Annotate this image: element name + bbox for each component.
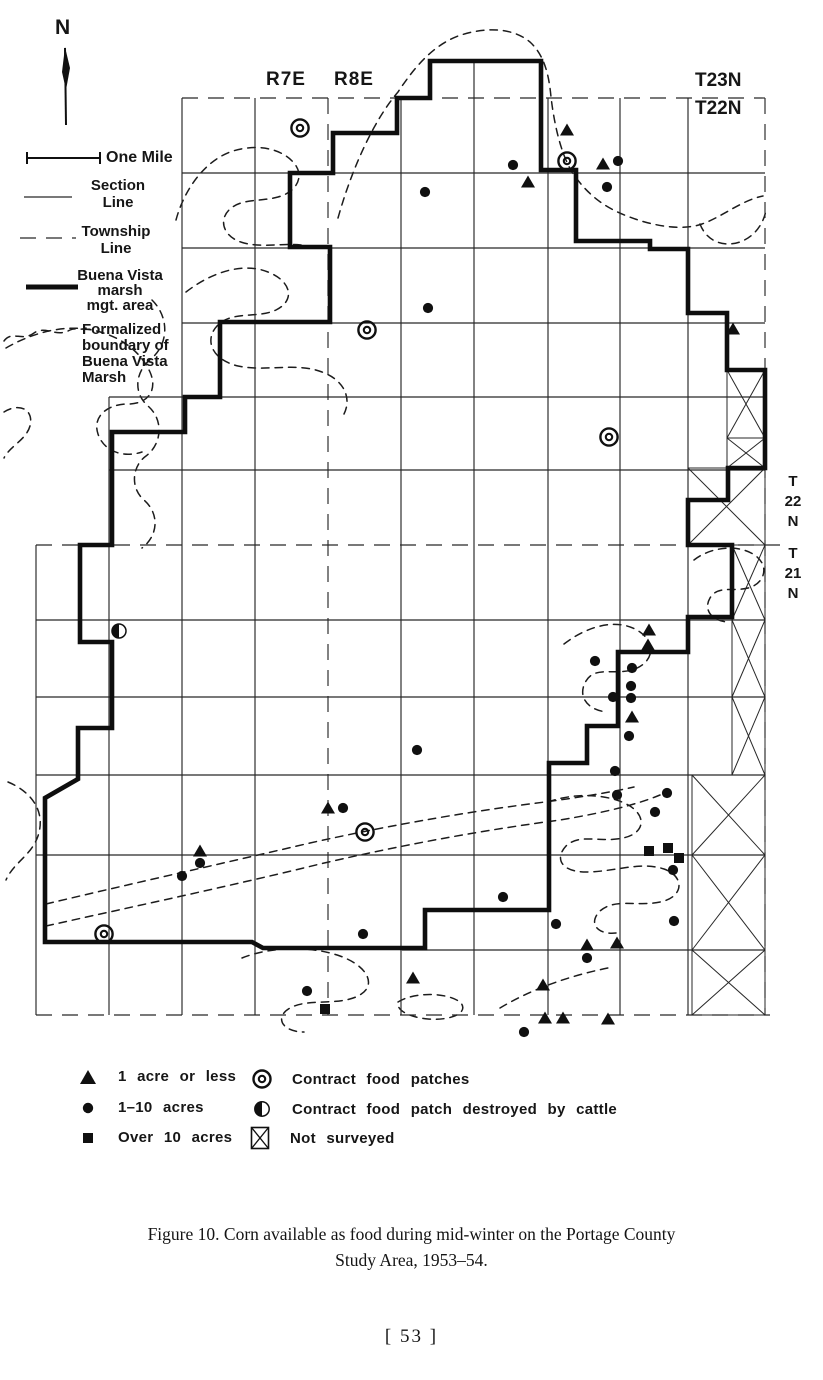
township-label-line: N bbox=[774, 584, 812, 604]
symbol-1-acre-or-less bbox=[580, 939, 594, 951]
symbol-1-acre-or-less bbox=[596, 158, 610, 170]
symbol-1-acre-or-less bbox=[610, 937, 624, 949]
legend-mgmt-area: Buena Vista marsh mgt. area bbox=[58, 268, 182, 313]
symbol-1-10-acres bbox=[519, 1027, 529, 1037]
symbol-1-10-acres bbox=[177, 871, 187, 881]
dot-icon bbox=[76, 1101, 100, 1115]
legend-item-1-10-acres: 1–10 acres bbox=[76, 1099, 204, 1116]
symbol-1-10-acres bbox=[195, 858, 205, 868]
legend-item-label: Contract food patch destroyed by cattle bbox=[292, 1101, 617, 1118]
page-number: [ 53 ] bbox=[0, 1326, 823, 1348]
symbol-1-acre-or-less bbox=[521, 176, 535, 188]
marsh-formalized-boundary bbox=[338, 30, 763, 227]
symbol-contract-food-patch bbox=[291, 119, 308, 136]
symbol-1-10-acres bbox=[612, 790, 622, 800]
symbol-1-acre-or-less bbox=[601, 1013, 615, 1025]
township-label-line: 22 bbox=[774, 492, 812, 512]
symbol-1-10-acres bbox=[650, 807, 660, 817]
symbol-over-10-acres bbox=[674, 853, 684, 863]
double-circle-icon bbox=[250, 1068, 274, 1090]
legend-item-destroyed-by-cattle: Contract food patch destroyed by cattle bbox=[250, 1099, 617, 1119]
township-label-line: N bbox=[774, 512, 812, 532]
symbol-1-10-acres bbox=[624, 731, 634, 741]
township-label-t23n: T23N bbox=[695, 70, 741, 92]
triangle-icon bbox=[76, 1069, 100, 1085]
legend-section-line: Section Line bbox=[70, 177, 166, 211]
symbol-1-10-acres bbox=[668, 865, 678, 875]
legend-item-over-10-acres: Over 10 acres bbox=[76, 1129, 232, 1146]
symbol-1-acre-or-less bbox=[560, 124, 574, 136]
symbol-1-10-acres bbox=[358, 929, 368, 939]
symbol-1-acre-or-less bbox=[556, 1012, 570, 1024]
symbol-1-10-acres bbox=[423, 303, 433, 313]
township-label-line: T bbox=[774, 544, 812, 564]
symbol-contract-food-patch bbox=[358, 321, 375, 338]
marsh-formalized-boundary bbox=[176, 148, 316, 248]
legend-mgmt-area-label: marsh bbox=[58, 283, 182, 298]
range-label-r7e: R7E bbox=[266, 69, 306, 91]
legend-marsh-boundary-label: Formalized bbox=[82, 322, 194, 338]
symbol-1-acre-or-less bbox=[193, 845, 207, 857]
marsh-formalized-boundary bbox=[46, 795, 660, 926]
symbol-1-10-acres bbox=[508, 160, 518, 170]
symbol-1-10-acres bbox=[582, 953, 592, 963]
symbol-over-10-acres bbox=[320, 1004, 330, 1014]
township-label-t22n-right: T 22 N bbox=[774, 472, 812, 532]
symbol-1-10-acres bbox=[627, 663, 637, 673]
symbol-1-acre-or-less bbox=[642, 624, 656, 636]
square-icon bbox=[76, 1132, 100, 1144]
legend-item-label: 1–10 acres bbox=[118, 1099, 204, 1116]
legend-item-label: Not surveyed bbox=[290, 1130, 395, 1147]
marsh-formalized-boundary bbox=[700, 210, 766, 244]
marsh-formalized-boundary bbox=[500, 968, 608, 1008]
township-label-line: 21 bbox=[774, 564, 812, 584]
township-label-t21n-right: T 21 N bbox=[774, 544, 812, 604]
symbol-1-10-acres bbox=[610, 766, 620, 776]
symbol-1-10-acres bbox=[338, 803, 348, 813]
figure-caption-line2: Study Area, 1953–54. bbox=[0, 1250, 823, 1271]
north-arrow-head bbox=[62, 47, 70, 90]
half-circle-icon bbox=[250, 1099, 274, 1119]
symbol-1-10-acres bbox=[626, 681, 636, 691]
symbol-1-10-acres bbox=[602, 182, 612, 192]
marsh-formalized-boundary bbox=[6, 782, 40, 880]
marsh-formalized-boundary bbox=[564, 624, 651, 712]
marsh-formalized-boundary bbox=[4, 408, 31, 458]
scale-label: One Mile bbox=[106, 149, 173, 167]
symbol-contract-food-patch bbox=[606, 434, 612, 440]
legend-mgmt-area-label: Buena Vista bbox=[58, 268, 182, 283]
symbol-1-10-acres bbox=[662, 788, 672, 798]
legend-township-line-label: Township bbox=[64, 223, 168, 240]
symbol-1-acre-or-less bbox=[625, 711, 639, 723]
legend-marsh-boundary-label: Marsh bbox=[82, 370, 194, 386]
legend-item-label: Over 10 acres bbox=[118, 1129, 232, 1146]
symbol-1-acre-or-less bbox=[406, 972, 420, 984]
symbol-1-10-acres bbox=[608, 692, 618, 702]
legend-marsh-boundary-sample bbox=[4, 328, 86, 341]
symbol-1-10-acres bbox=[498, 892, 508, 902]
north-label: N bbox=[55, 16, 71, 40]
symbol-1-acre-or-less bbox=[538, 1012, 552, 1024]
symbol-contract-food-patch bbox=[297, 125, 303, 131]
legend-item-not-surveyed: Not surveyed bbox=[248, 1126, 395, 1150]
legend-item-contract-food-patches: Contract food patches bbox=[250, 1068, 469, 1090]
symbol-1-10-acres bbox=[626, 693, 636, 703]
legend-section-line-label: Section bbox=[70, 177, 166, 194]
symbol-over-10-acres bbox=[644, 846, 654, 856]
legend-township-line: Township Line bbox=[64, 223, 168, 257]
legend-marsh-boundary: Formalized boundary of Buena Vista Marsh bbox=[82, 322, 194, 386]
marsh-formalized-boundary bbox=[694, 548, 764, 622]
legend-item-label: 1 acre or less bbox=[118, 1068, 236, 1085]
marsh-formalized-boundary bbox=[186, 268, 347, 414]
range-label-r8e: R8E bbox=[334, 69, 374, 91]
symbol-1-acre-or-less bbox=[641, 639, 655, 651]
symbol-1-10-acres bbox=[302, 986, 312, 996]
symbol-contract-food-patch bbox=[600, 428, 617, 445]
legend-marsh-boundary-label: Buena Vista bbox=[82, 354, 194, 370]
legend-township-line-label: Line bbox=[64, 240, 168, 257]
symbol-over-10-acres bbox=[663, 843, 673, 853]
symbol-1-10-acres bbox=[551, 919, 561, 929]
figure-caption-line1: Figure 10. Corn available as food during… bbox=[0, 1224, 823, 1245]
township-label-line: T bbox=[774, 472, 812, 492]
township-label-t22n: T22N bbox=[695, 98, 741, 120]
symbol-1-10-acres bbox=[669, 916, 679, 926]
symbol-1-10-acres bbox=[412, 745, 422, 755]
symbol-1-10-acres bbox=[590, 656, 600, 666]
legend-item-1-acre-or-less: 1 acre or less bbox=[76, 1068, 236, 1085]
symbol-1-10-acres bbox=[613, 156, 623, 166]
marsh-formalized-boundary bbox=[548, 796, 679, 934]
symbol-1-10-acres bbox=[420, 187, 430, 197]
symbol-1-acre-or-less bbox=[321, 802, 335, 814]
not-surveyed-icon bbox=[248, 1126, 272, 1150]
symbol-contract-food-patch bbox=[101, 931, 107, 937]
legend-item-label: Contract food patches bbox=[292, 1071, 469, 1088]
symbol-contract-food-patch bbox=[364, 327, 370, 333]
legend-section-line-label: Line bbox=[70, 194, 166, 211]
legend-marsh-boundary-label: boundary of bbox=[82, 338, 194, 354]
scanned-page: N One Mile Section Line Township Line Bu… bbox=[0, 0, 823, 1380]
legend-mgmt-area-label: mgt. area bbox=[58, 298, 182, 313]
